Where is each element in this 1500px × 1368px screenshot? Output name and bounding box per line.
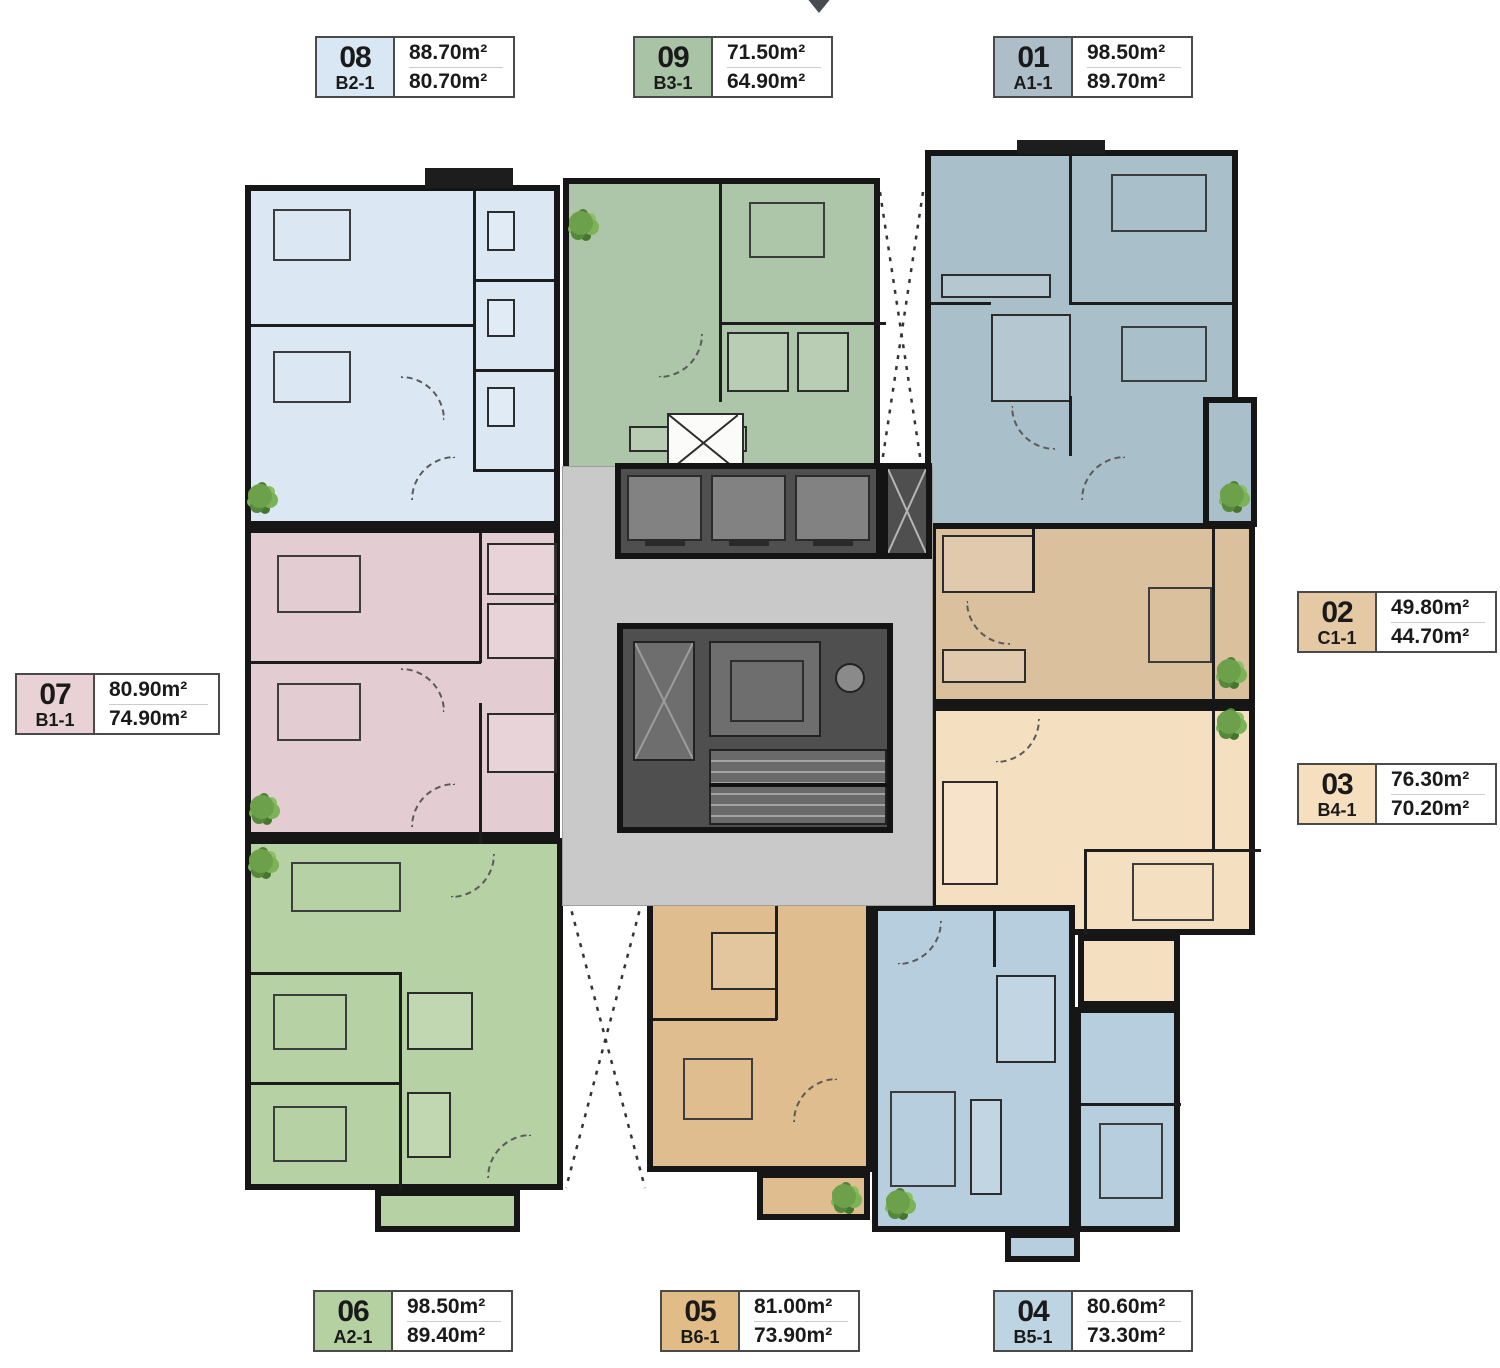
unit-09-badge: 09 B3-1 xyxy=(635,38,713,96)
tree-icon xyxy=(249,849,273,873)
unit-06-callout[interactable]: 06 A2-1 98.50m² 89.40m² xyxy=(313,1290,513,1352)
tree-icon xyxy=(886,1190,910,1214)
tree-icon xyxy=(569,211,593,235)
gross-area: 88.70m² xyxy=(409,39,503,68)
gross-area: 81.00m² xyxy=(754,1293,848,1322)
north-arrow-icon xyxy=(806,0,832,13)
unit-02-badge: 02 C1-1 xyxy=(1299,593,1377,651)
unit-01-callout[interactable]: 01 A1-1 98.50m² 89.70m² xyxy=(993,36,1193,98)
unit-type-code: B3-1 xyxy=(653,74,692,92)
unit-04-entry xyxy=(1005,1232,1080,1262)
tree-icon xyxy=(250,795,274,819)
unit-number: 04 xyxy=(1017,1297,1048,1327)
unit-07-floor-area[interactable] xyxy=(245,527,560,838)
unit-05-badge: 05 B6-1 xyxy=(662,1292,740,1350)
unit-02-floor-area[interactable] xyxy=(930,523,1255,705)
gross-area: 71.50m² xyxy=(727,39,821,68)
net-area: 89.70m² xyxy=(1087,68,1181,96)
unit-08-entry-porch xyxy=(425,168,513,188)
unit-04-badge: 04 B5-1 xyxy=(995,1292,1073,1350)
gross-area: 98.50m² xyxy=(407,1293,501,1322)
unit-03-badge: 03 B4-1 xyxy=(1299,765,1377,823)
tree-icon xyxy=(832,1184,856,1208)
net-area: 80.70m² xyxy=(409,68,503,96)
net-area: 73.90m² xyxy=(754,1322,848,1350)
unit-04-floor-area-ext[interactable] xyxy=(1075,1007,1180,1232)
elevator-bank xyxy=(615,463,882,559)
tree-icon xyxy=(248,484,272,508)
unit-05-callout[interactable]: 05 B6-1 81.00m² 73.90m² xyxy=(660,1290,860,1352)
net-area: 73.30m² xyxy=(1087,1322,1181,1350)
tree-icon xyxy=(1217,710,1241,734)
unit-01-badge: 01 A1-1 xyxy=(995,38,1073,96)
unit-03-floor-area[interactable] xyxy=(930,705,1255,935)
unit-08-badge: 08 B2-1 xyxy=(317,38,395,96)
stair-core xyxy=(617,623,893,833)
light-well-east xyxy=(878,190,925,478)
light-well-south xyxy=(563,888,648,1190)
net-area: 44.70m² xyxy=(1391,623,1485,651)
net-area: 74.90m² xyxy=(109,705,208,733)
floorplan-page: 08 B2-1 88.70m² 80.70m² 09 B3-1 71.50m² … xyxy=(0,0,1500,1368)
unit-number: 09 xyxy=(657,43,688,73)
unit-06-badge: 06 A2-1 xyxy=(315,1292,393,1350)
unit-type-code: B1-1 xyxy=(35,711,74,729)
unit-type-code: A2-1 xyxy=(333,1328,372,1346)
tree-icon xyxy=(1220,483,1244,507)
unit-06-entry xyxy=(375,1190,520,1232)
unit-number: 02 xyxy=(1321,598,1352,628)
unit-01-entry-porch xyxy=(1017,140,1105,154)
unit-number: 01 xyxy=(1017,43,1048,73)
unit-number: 03 xyxy=(1321,770,1352,800)
net-area: 89.40m² xyxy=(407,1322,501,1350)
unit-07-callout[interactable]: 07 B1-1 80.90m² 74.90m² xyxy=(15,673,220,735)
unit-type-code: B4-1 xyxy=(1317,801,1356,819)
unit-05-floor-area-main[interactable] xyxy=(647,892,872,1172)
unit-04-floor-area[interactable] xyxy=(872,905,1075,1232)
unit-number: 08 xyxy=(339,43,370,73)
unit-04-callout[interactable]: 04 B5-1 80.60m² 73.30m² xyxy=(993,1290,1193,1352)
unit-06-floor-area[interactable] xyxy=(245,838,563,1190)
unit-02-callout[interactable]: 02 C1-1 49.80m² 44.70m² xyxy=(1297,591,1497,653)
gross-area: 80.90m² xyxy=(109,676,208,705)
unit-number: 07 xyxy=(39,680,70,710)
unit-03-floor-area-ext[interactable] xyxy=(1078,935,1180,1007)
net-area: 70.20m² xyxy=(1391,795,1485,823)
unit-type-code: C1-1 xyxy=(1317,629,1356,647)
unit-08-callout[interactable]: 08 B2-1 88.70m² 80.70m² xyxy=(315,36,515,98)
unit-type-code: A1-1 xyxy=(1013,74,1052,92)
unit-09-callout[interactable]: 09 B3-1 71.50m² 64.90m² xyxy=(633,36,833,98)
unit-08-floor-area[interactable] xyxy=(245,185,560,527)
net-area: 64.90m² xyxy=(727,68,821,96)
unit-03-callout[interactable]: 03 B4-1 76.30m² 70.20m² xyxy=(1297,763,1497,825)
unit-type-code: B5-1 xyxy=(1013,1328,1052,1346)
tree-icon xyxy=(1217,659,1241,683)
unit-01-balcony xyxy=(1203,397,1257,527)
gross-area: 49.80m² xyxy=(1391,594,1485,623)
gross-area: 80.60m² xyxy=(1087,1293,1181,1322)
unit-number: 06 xyxy=(337,1297,368,1327)
service-shaft xyxy=(882,463,932,559)
unit-type-code: B6-1 xyxy=(680,1328,719,1346)
unit-type-code: B2-1 xyxy=(335,74,374,92)
unit-number: 05 xyxy=(684,1297,715,1327)
gross-area: 76.30m² xyxy=(1391,766,1485,795)
gross-area: 98.50m² xyxy=(1087,39,1181,68)
unit-01-floor-area[interactable] xyxy=(925,150,1238,530)
unit-07-badge: 07 B1-1 xyxy=(17,675,95,733)
